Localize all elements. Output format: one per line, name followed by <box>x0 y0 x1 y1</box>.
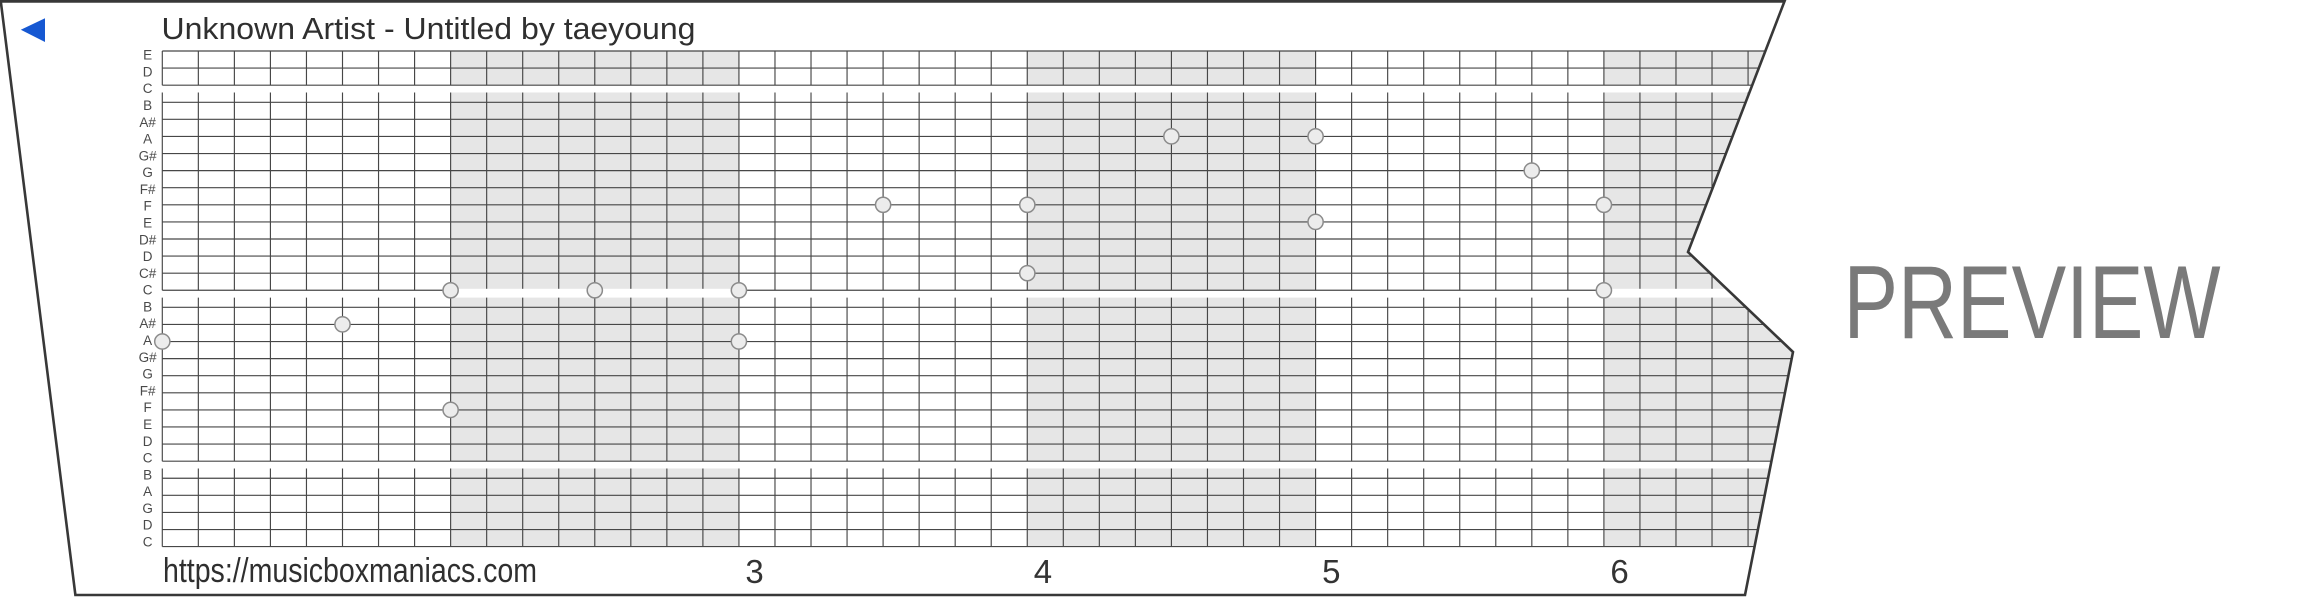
svg-text:A#: A# <box>139 115 156 130</box>
svg-text:C#: C# <box>139 266 157 281</box>
svg-text:F#: F# <box>140 182 156 197</box>
svg-text:C: C <box>143 283 153 298</box>
svg-text:F#: F# <box>140 383 156 398</box>
svg-text:6: 6 <box>1610 553 1628 590</box>
svg-text:4: 4 <box>1034 553 1052 590</box>
svg-text:A#: A# <box>139 316 156 331</box>
svg-text:G: G <box>142 367 153 382</box>
svg-text:B: B <box>143 98 152 113</box>
svg-text:B: B <box>143 467 152 482</box>
svg-text:D: D <box>143 249 153 264</box>
svg-text:A: A <box>143 132 152 147</box>
svg-text:G: G <box>142 165 153 180</box>
svg-text:B: B <box>143 299 152 314</box>
svg-text:F: F <box>143 199 151 214</box>
svg-text:PREVIEW: PREVIEW <box>1844 245 2221 361</box>
svg-text:E: E <box>143 48 152 63</box>
svg-text:D: D <box>143 64 153 79</box>
svg-text:D: D <box>143 434 153 449</box>
svg-text:E: E <box>143 417 152 432</box>
svg-text:A: A <box>143 484 152 499</box>
svg-text:5: 5 <box>1322 553 1340 590</box>
svg-text:https://musicboxmaniacs.com: https://musicboxmaniacs.com <box>163 552 537 590</box>
svg-text:3: 3 <box>745 553 763 590</box>
svg-text:D#: D# <box>139 232 157 247</box>
svg-text:C: C <box>143 81 153 96</box>
svg-text:A: A <box>143 333 152 348</box>
svg-text:E: E <box>143 216 152 231</box>
svg-text:D: D <box>143 518 153 533</box>
svg-text:F: F <box>143 400 151 415</box>
svg-text:C: C <box>143 451 153 466</box>
svg-text:G: G <box>142 501 153 516</box>
svg-text:G#: G# <box>139 350 158 365</box>
svg-text:G#: G# <box>139 148 158 163</box>
svg-text:C: C <box>143 535 153 550</box>
svg-text:Unknown Artist - Untitled by t: Unknown Artist - Untitled by taeyoung <box>162 12 696 46</box>
